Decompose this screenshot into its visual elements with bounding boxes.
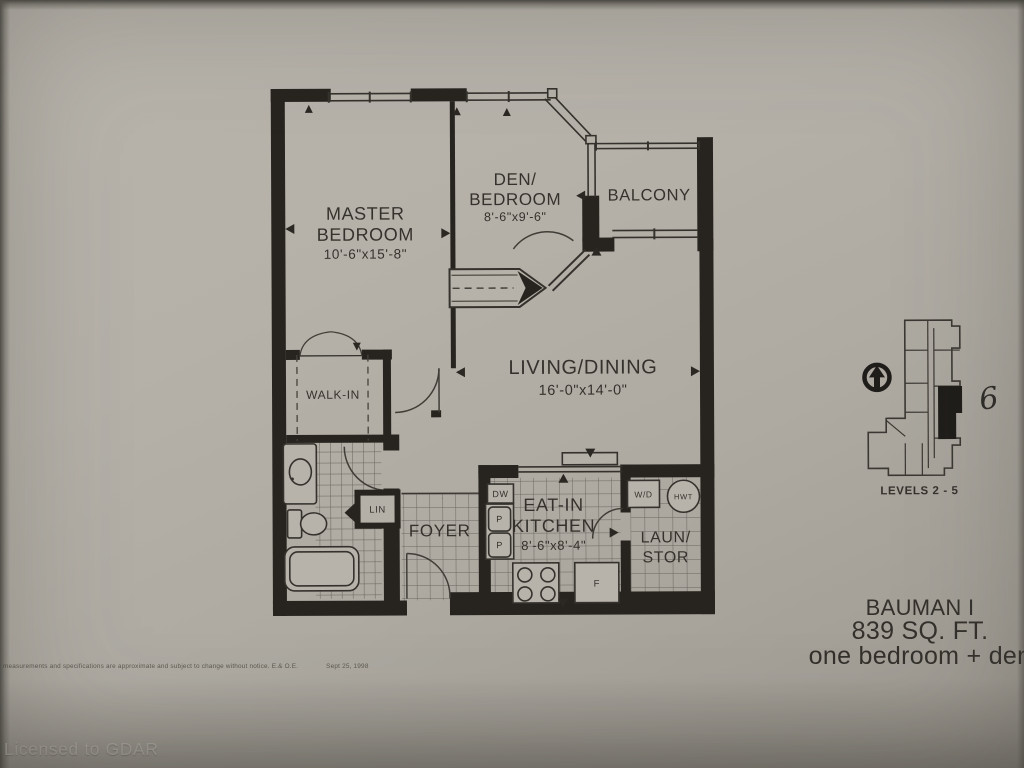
kitchen-label-2: KITCHEN [512, 516, 595, 536]
sink-p1-label: P [496, 514, 503, 524]
unit-number-handwritten: 6 [977, 380, 1001, 417]
toilet-bowl [301, 513, 327, 535]
dw-label: DW [492, 489, 508, 499]
disclaimer-text: measurements and specifications are appr… [3, 663, 298, 670]
sink-bowl [289, 459, 311, 485]
keymap-levels-label: LEVELS 2 - 5 [880, 485, 958, 497]
disclaimer-line: measurements and specifications are appr… [3, 663, 369, 670]
bathtub [285, 547, 359, 591]
scanned-floorplan-photo: MASTER BEDROOM 10'-6"x15'-8" DEN/ BEDROO… [0, 0, 1024, 768]
living-label: LIVING/DINING [508, 356, 657, 379]
plan-type: one bedroom + den [768, 644, 1024, 668]
kitchen-label-1: EAT-IN [523, 495, 583, 515]
balcony-label: BALCONY [608, 186, 691, 204]
laundry-label-1: LAUN/ [641, 529, 691, 546]
den-label-2: BEDROOM [469, 190, 561, 209]
sink-p2-label: P [496, 540, 503, 550]
plan-area: 839 SQ. FT. [768, 619, 1024, 644]
walkin-label: WALK-IN [306, 388, 360, 402]
hwt-label: HWT [674, 492, 693, 501]
kitchen-dims: 8'-6"x8'-4" [521, 538, 586, 553]
wd-label: W/D [634, 489, 652, 499]
master-label-2: BEDROOM [317, 224, 414, 244]
master-dims: 10'-6"x15'-8" [324, 246, 407, 261]
photo-bottom-shade [0, 678, 1024, 768]
title-block: BAUMAN I 839 SQ. FT. one bedroom + den [768, 596, 1024, 668]
building-keymap: 6 LEVELS 2 - 5 [864, 320, 1001, 498]
den-label-1: DEN/ [494, 170, 537, 189]
plan-name: BAUMAN I [768, 596, 1024, 619]
lin-label: LIN [369, 505, 386, 516]
laundry-label-2: STOR [642, 549, 689, 566]
fridge-label: F [594, 579, 600, 590]
living-dims: 16'-0"x14'-0" [539, 382, 628, 398]
master-label-1: MASTER [326, 203, 405, 223]
foyer-label: FOYER [409, 521, 471, 540]
toilet-tank [288, 510, 302, 538]
disclaimer-date: Sept 25, 1998 [326, 663, 368, 670]
highlighted-unit [938, 386, 962, 439]
den-dims: 8'-6"x9'-6" [484, 210, 547, 224]
